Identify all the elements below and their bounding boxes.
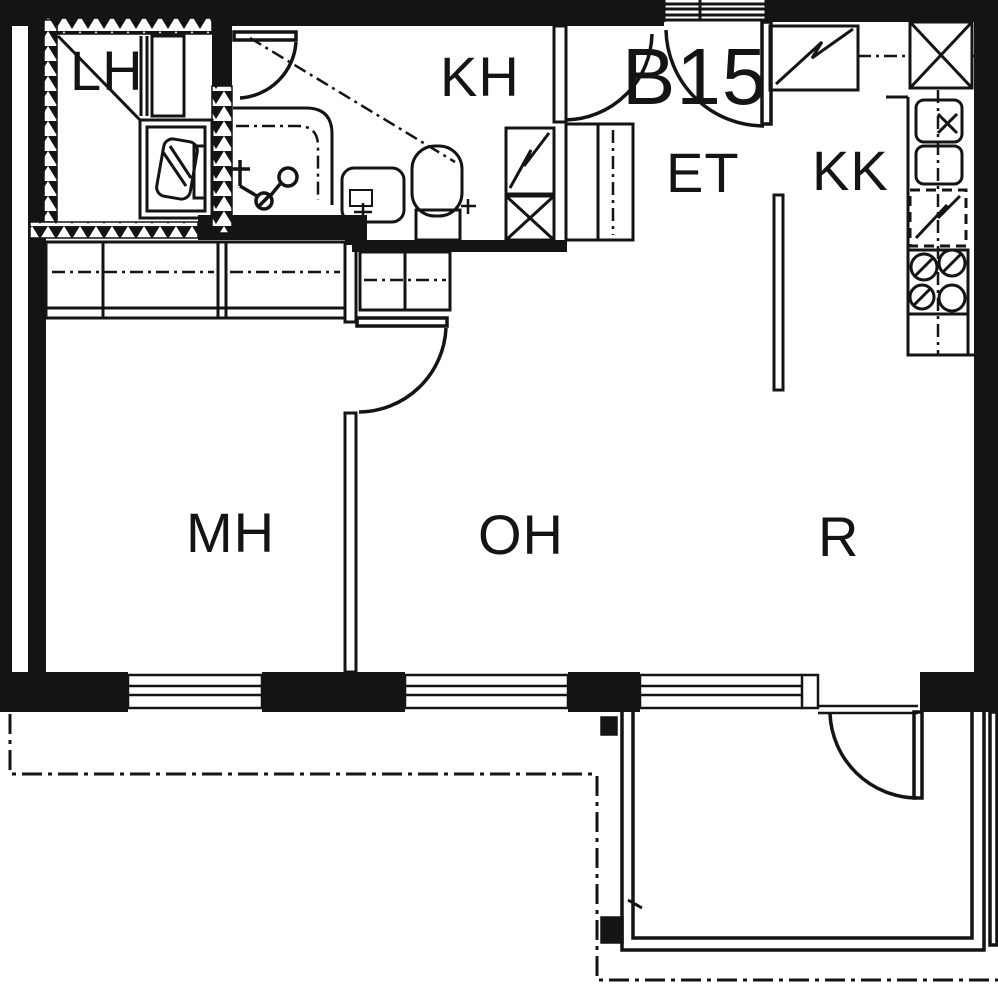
hatched-wall-bottom	[30, 222, 198, 238]
terrace-boundary	[10, 714, 595, 774]
railing-post	[602, 918, 622, 942]
bathroom-bottom-wall	[352, 240, 567, 252]
window-icon	[405, 675, 568, 708]
room-label-et: ET	[666, 141, 740, 204]
wardrobe-icon	[566, 124, 633, 240]
bottom-wall-segment	[12, 672, 128, 712]
apartment-number: B15	[622, 32, 767, 121]
room-label-oh: OH	[478, 503, 564, 566]
hatched-wall-left	[44, 20, 57, 222]
hatched-wall-right	[212, 86, 232, 233]
top-wall-right	[766, 0, 998, 22]
room-labels: LH KH ET KK MH OH R B15	[70, 32, 889, 568]
interior-walls	[345, 26, 783, 672]
et-r-screen	[774, 195, 783, 390]
wardrobe-icon	[360, 252, 450, 310]
windows	[128, 675, 818, 708]
room-label-lh: LH	[70, 39, 144, 102]
bench	[152, 36, 184, 116]
door-arc-icon	[240, 42, 296, 98]
floor-plan-page: LH KH ET KK MH OH R B15	[0, 0, 998, 1000]
kh-et-wall	[554, 26, 566, 122]
washbasin-icon	[342, 168, 404, 222]
door-jamb	[802, 675, 818, 708]
bottom-wall-segment	[262, 672, 405, 712]
bottom-wall-segment	[920, 672, 998, 712]
entrance-recess	[664, 0, 766, 22]
wardrobe-icon	[46, 242, 345, 318]
electric-cabinet-icon	[770, 26, 858, 90]
toilet-icon	[412, 146, 476, 240]
lh-door-leaf	[234, 32, 296, 40]
lh-kh-wall-top	[212, 26, 232, 86]
room-label-mh: MH	[186, 501, 275, 564]
room-label-r: R	[818, 505, 859, 568]
balcony-railing-icon	[622, 712, 984, 950]
mh-oh-wall-upper	[345, 242, 356, 322]
room-label-kh: KH	[440, 45, 520, 108]
bottom-wall-segment	[568, 672, 640, 712]
scan-margin-left	[0, 0, 12, 712]
balcony-door-leaf	[914, 712, 922, 798]
balcony	[602, 712, 997, 950]
tick-mark	[628, 900, 642, 908]
electric-cabinet-icon	[506, 128, 554, 194]
floor-plan-drawing: LH KH ET KK MH OH R B15	[0, 0, 998, 1000]
ventilation-shaft-icon	[506, 196, 554, 240]
washing-machine-icon	[140, 120, 212, 218]
ceiling-slope-line	[250, 38, 455, 162]
ventilation-shaft-icon	[910, 22, 972, 88]
window-icon	[640, 675, 818, 708]
mh-oh-wall-lower	[345, 413, 356, 672]
kitchen-run	[886, 90, 974, 355]
site-boundaries	[10, 714, 998, 980]
shower-mixer-icon	[230, 160, 297, 209]
railing-post	[602, 718, 616, 734]
door-arc-icon	[830, 714, 916, 798]
window-icon	[128, 675, 262, 708]
balcony-divider	[990, 712, 997, 945]
door-arc-icon	[359, 328, 446, 412]
mh-door-leaf	[357, 318, 447, 326]
hatched-wall-top	[46, 18, 212, 34]
room-label-kk: KK	[812, 139, 889, 202]
right-wall	[974, 0, 998, 712]
